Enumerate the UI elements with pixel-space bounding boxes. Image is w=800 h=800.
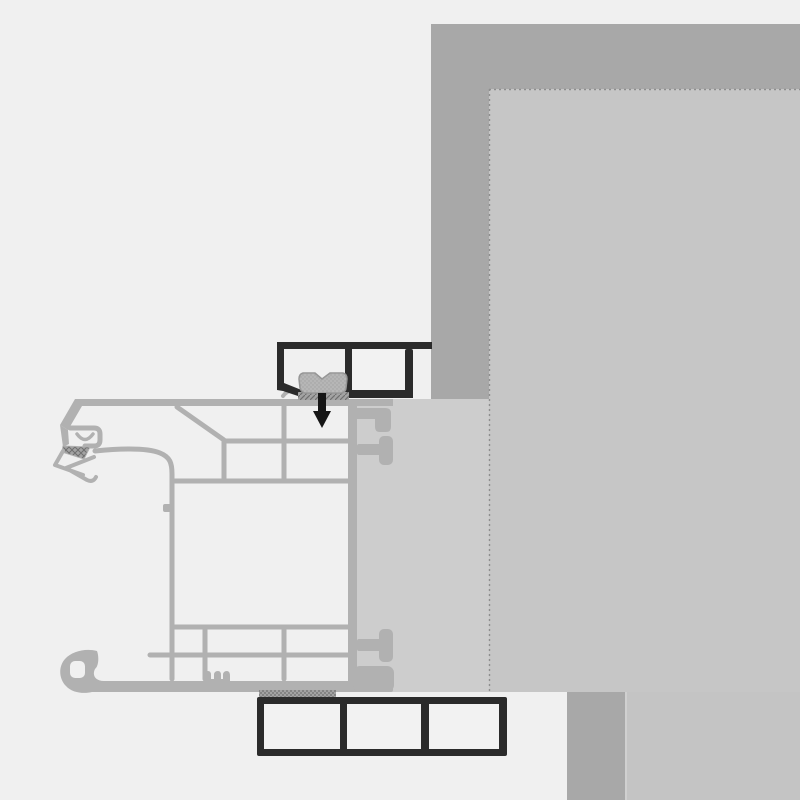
bottom-trim-cell (264, 704, 340, 749)
frame-t-connector-upper-cap (379, 436, 393, 465)
installation-detail-drawing (0, 0, 800, 800)
bottom-compriband-strip (259, 690, 336, 698)
top-trim-right-leg (405, 349, 413, 398)
wall-inner-surface (489, 89, 800, 692)
top-trim-left-leg (277, 342, 284, 387)
wall-bottom-slab (625, 692, 800, 800)
screw-shaft (318, 393, 326, 412)
frame-t-connector-upper-stem (357, 444, 381, 455)
top-trim-bottom-bar (345, 390, 413, 398)
frame-left-foot-notch (70, 661, 85, 678)
frame-web-nub (163, 504, 173, 512)
frame-t-connector-lower-cap (379, 629, 393, 662)
bottom-trim-cell (347, 704, 421, 749)
top-trim-top-bar (277, 342, 432, 349)
bottom-trim-profile (257, 697, 507, 756)
frame-bottom-teeth (204, 671, 230, 682)
frame-t-connector-lower-stem (357, 639, 381, 651)
bottom-trim-cell (429, 704, 499, 749)
wall-bottom-pillar (567, 692, 625, 800)
frame-right-foot (353, 666, 394, 692)
top-trim-cell (352, 349, 405, 391)
